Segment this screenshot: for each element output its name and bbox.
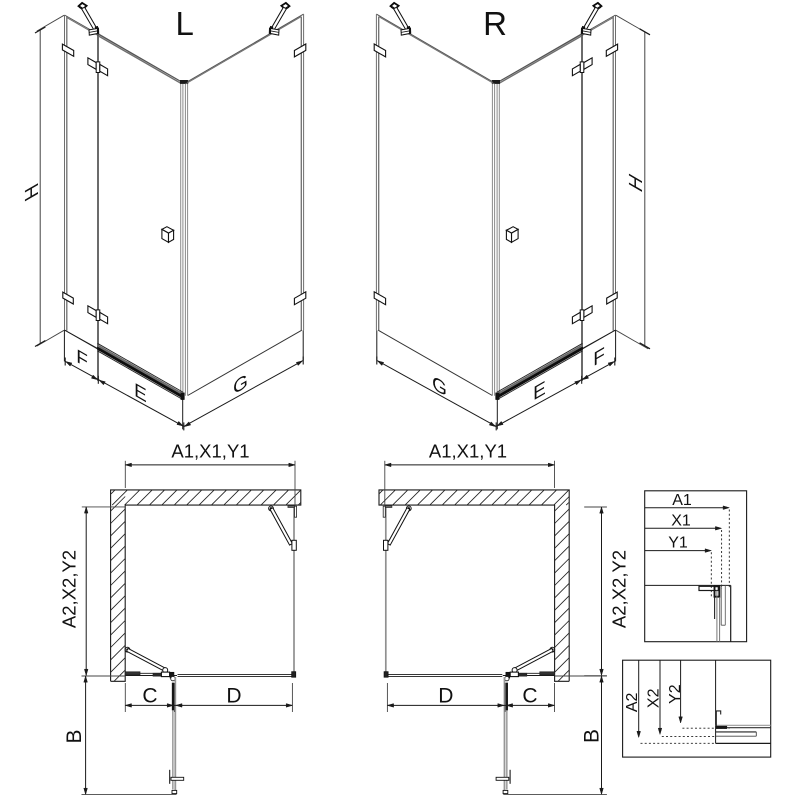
svg-text:L: L	[176, 5, 194, 42]
svg-text:C: C	[522, 684, 537, 707]
svg-text:B: B	[581, 729, 604, 743]
svg-text:D: D	[226, 684, 241, 707]
svg-text:R: R	[483, 5, 507, 42]
svg-text:Y1: Y1	[668, 535, 688, 552]
svg-text:A1,X1,Y1: A1,X1,Y1	[171, 440, 249, 461]
svg-text:X2: X2	[646, 688, 663, 708]
svg-text:Y2: Y2	[667, 684, 684, 704]
svg-text:A2,X2,Y2: A2,X2,Y2	[609, 550, 630, 628]
svg-text:A1: A1	[672, 492, 692, 509]
svg-text:B: B	[63, 729, 86, 743]
svg-text:C: C	[142, 684, 157, 707]
svg-text:A2,X2,Y2: A2,X2,Y2	[59, 550, 80, 628]
svg-text:A1,X1,Y1: A1,X1,Y1	[429, 440, 507, 461]
svg-text:X1: X1	[671, 512, 691, 529]
svg-text:A2: A2	[624, 693, 641, 713]
svg-text:D: D	[438, 684, 453, 707]
